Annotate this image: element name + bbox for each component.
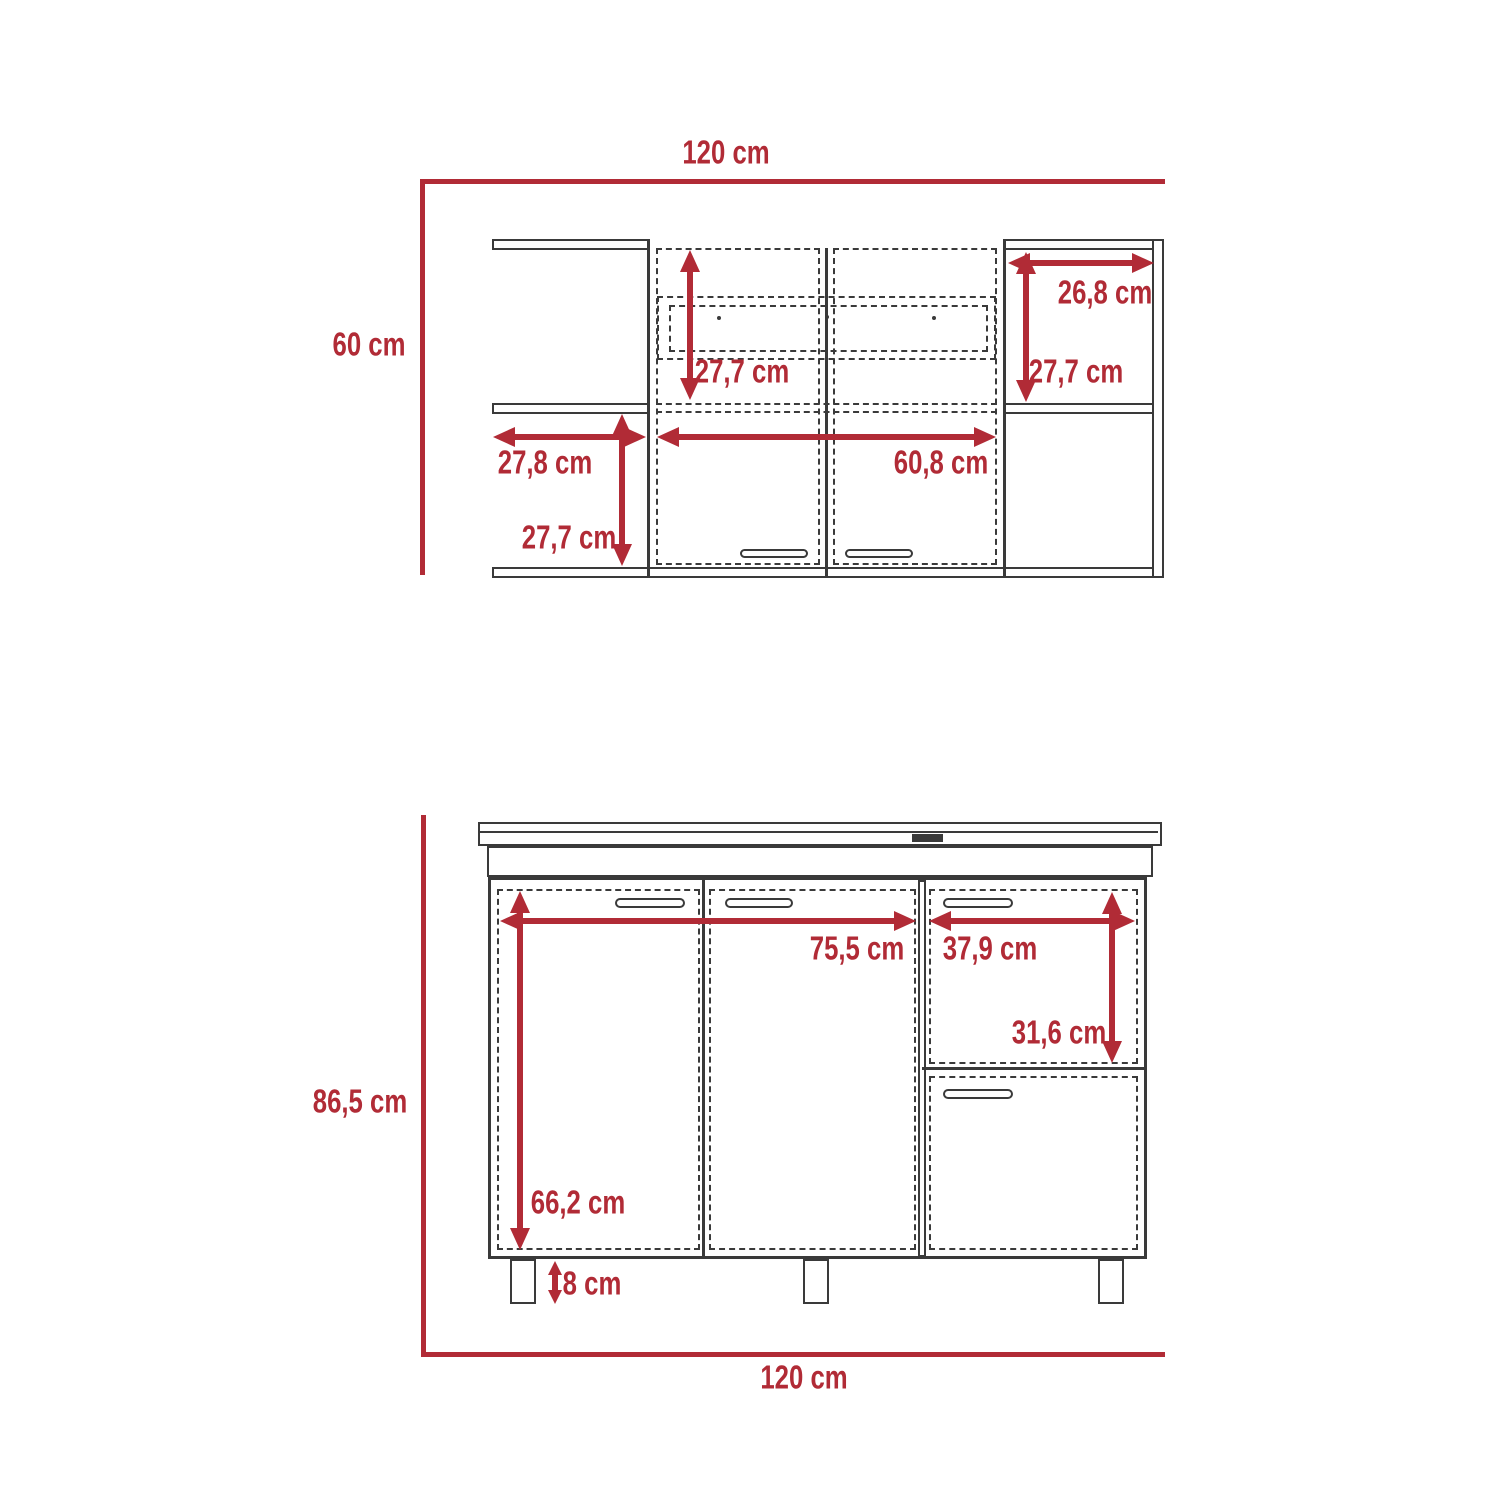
wall-hidden-shelf-line-lower — [656, 411, 997, 413]
wall-door-height-arrow — [687, 270, 693, 380]
base-drawer-width-arrow — [949, 918, 1115, 924]
base-drawer-width-label: 37,9 cm — [943, 932, 1037, 965]
base-overall-width-label: 120 cm — [760, 1361, 847, 1394]
wall-hidden-shelf-line-upper — [656, 403, 997, 405]
base-drawer-height-arrow — [1109, 912, 1115, 1043]
base-door-height-arrow — [517, 911, 523, 1230]
base-door-section-width-label: 75,5 cm — [810, 932, 904, 965]
base-lower-door-outline — [929, 1076, 1138, 1250]
wall-left-middle-shelf — [492, 403, 649, 414]
base-leg-height-arrow — [552, 1273, 558, 1292]
base-left-door-handle — [615, 898, 685, 908]
base-leg-left — [510, 1259, 536, 1304]
base-divider-left — [702, 880, 705, 1257]
wall-left-lower-height-label: 27,7 cm — [522, 521, 616, 554]
countertop-edge-line — [480, 831, 1158, 833]
wall-recess-inner-outline — [669, 305, 988, 352]
wall-left-shelf-width-label: 27,8 cm — [498, 446, 592, 479]
wall-overall-width-line — [420, 179, 1165, 184]
wall-door-height-label: 27,7 cm — [695, 355, 789, 388]
wall-fixing-dot-left — [717, 316, 721, 320]
wall-fixing-dot-center — [825, 315, 829, 319]
countertop — [478, 822, 1162, 846]
base-overall-width-line — [421, 1352, 1165, 1357]
wall-right-middle-shelf — [1004, 403, 1154, 414]
base-middle-door-handle — [725, 898, 793, 908]
wall-fixing-dot-right — [932, 316, 936, 320]
wall-right-shelf-width-arrow — [1028, 260, 1134, 266]
base-door-height-label: 66,2 cm — [531, 1186, 625, 1219]
base-door-section-width-arrow — [520, 918, 896, 924]
apron-panel — [487, 846, 1153, 877]
countertop-joint-mark — [912, 834, 943, 842]
furniture-dimension-diagram: 120 cm 60 cm 27,7 cm 26,8 cm 27,7 cm — [0, 0, 1500, 1500]
base-drawer-height-label: 31,6 cm — [1012, 1016, 1106, 1049]
base-drawer-divider-line — [922, 1067, 1147, 1070]
base-leg-right — [1098, 1259, 1124, 1304]
wall-left-door-handle — [740, 549, 808, 558]
wall-divider-left — [647, 239, 650, 578]
wall-overall-width-label: 120 cm — [682, 136, 769, 169]
base-drawer-handle — [943, 898, 1013, 908]
base-lower-door-handle — [943, 1089, 1013, 1099]
base-leg-height-label: 8 cm — [563, 1267, 622, 1300]
wall-right-shelf-height-label: 27,7 cm — [1029, 355, 1123, 388]
wall-overall-height-label: 60 cm — [333, 328, 406, 361]
wall-overall-height-line — [420, 179, 425, 575]
wall-right-shelf-width-label: 26,8 cm — [1058, 276, 1152, 309]
wall-divider-right — [1003, 239, 1006, 578]
wall-double-door-width-label: 60,8 cm — [894, 446, 988, 479]
wall-right-side-panel — [1152, 239, 1164, 578]
wall-bottom-panel — [492, 567, 1164, 578]
wall-right-door-handle — [845, 549, 913, 558]
wall-right-top-shelf — [1004, 239, 1154, 250]
base-overall-height-line — [421, 815, 426, 1357]
wall-left-top-shelf — [492, 239, 649, 250]
wall-double-door-width-arrow — [677, 434, 976, 440]
wall-left-shelf-width-arrow — [513, 434, 626, 440]
wall-left-lower-height-arrow — [619, 434, 625, 546]
base-overall-height-label: 86,5 cm — [313, 1085, 407, 1118]
base-leg-middle — [803, 1259, 829, 1304]
